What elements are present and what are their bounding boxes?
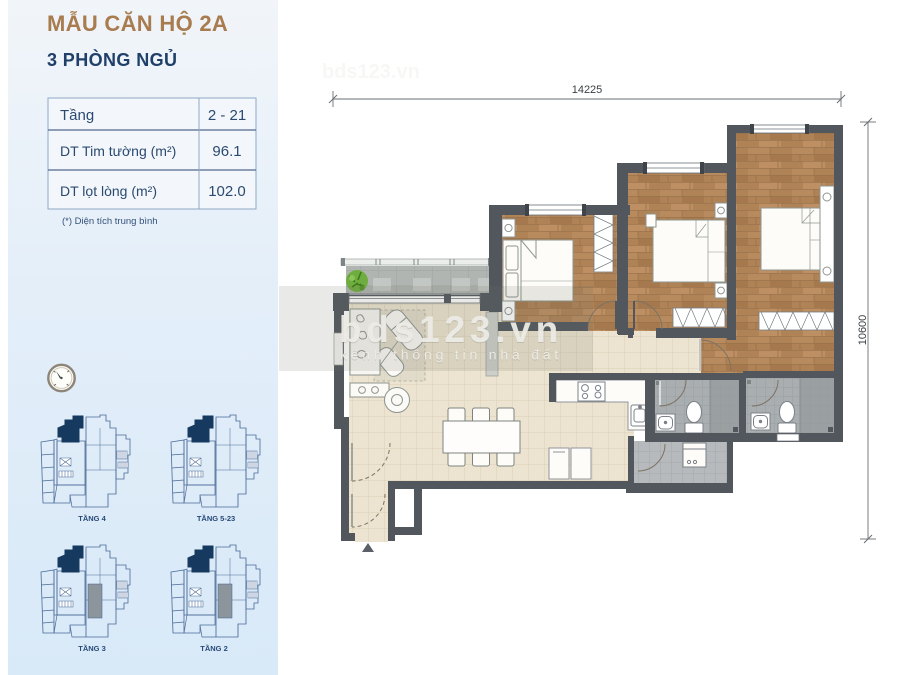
svg-text:TẦNG 4: TẦNG 4 — [78, 513, 106, 523]
svg-text:2 - 21: 2 - 21 — [208, 107, 246, 124]
svg-text:bds123.vn: bds123.vn — [339, 309, 563, 350]
svg-text:TẦNG 3: TẦNG 3 — [78, 643, 106, 653]
svg-text:DT lọt lòng (m²): DT lọt lòng (m²) — [60, 183, 157, 199]
svg-text:96.1: 96.1 — [212, 143, 241, 160]
svg-text:TẦNG 5-23: TẦNG 5-23 — [197, 513, 235, 523]
svg-text:kênh thông tin nhà đất: kênh thông tin nhà đất — [340, 347, 562, 363]
svg-text:102.0: 102.0 — [208, 183, 246, 200]
svg-text:10600: 10600 — [857, 315, 869, 346]
svg-text:(*) Diện tích trung bình: (*) Diện tích trung bình — [62, 216, 158, 227]
svg-text:bds123.vn: bds123.vn — [322, 61, 420, 83]
svg-text:TẦNG 2: TẦNG 2 — [200, 643, 228, 653]
svg-text:3 PHÒNG NGỦ: 3 PHÒNG NGỦ — [47, 49, 177, 70]
svg-text:DT Tim tường (m²): DT Tim tường (m²) — [60, 143, 176, 159]
svg-text:Tầng: Tầng — [60, 107, 94, 124]
svg-text:14225: 14225 — [572, 84, 603, 96]
svg-text:MẪU CĂN HỘ 2A: MẪU CĂN HỘ 2A — [47, 10, 228, 36]
